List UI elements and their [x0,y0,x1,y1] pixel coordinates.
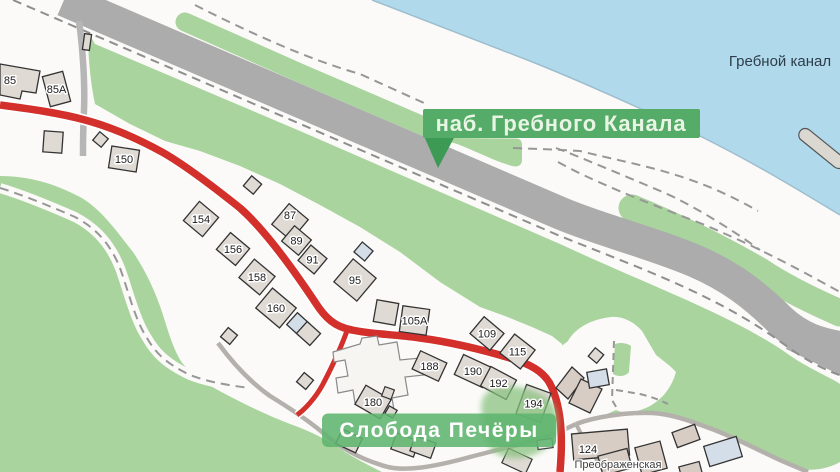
svg-text:91: 91 [306,255,318,267]
svg-text:192: 192 [489,378,507,390]
svg-text:85A: 85A [47,84,67,96]
svg-text:105А: 105А [402,316,428,328]
svg-text:Слобода Печёры: Слобода Печёры [339,419,538,442]
svg-text:Преображенская: Преображенская [575,459,662,471]
svg-text:124: 124 [579,444,597,456]
svg-text:85: 85 [4,75,16,87]
svg-text:180: 180 [364,397,382,409]
svg-text:154: 154 [192,214,210,226]
svg-text:158: 158 [248,272,266,284]
svg-text:Гребной канал: Гребной канал [729,53,831,70]
svg-text:115: 115 [509,347,527,359]
svg-text:156: 156 [224,244,242,256]
svg-text:87: 87 [284,210,296,222]
svg-text:109: 109 [478,329,496,341]
svg-text:89: 89 [290,236,302,248]
svg-text:160: 160 [267,303,285,315]
svg-text:95: 95 [349,275,361,287]
svg-text:190: 190 [464,366,482,378]
svg-text:150: 150 [115,154,133,166]
svg-text:наб. Гребного Канала: наб. Гребного Канала [436,111,687,136]
svg-text:194: 194 [524,399,542,411]
svg-text:188: 188 [420,361,438,373]
